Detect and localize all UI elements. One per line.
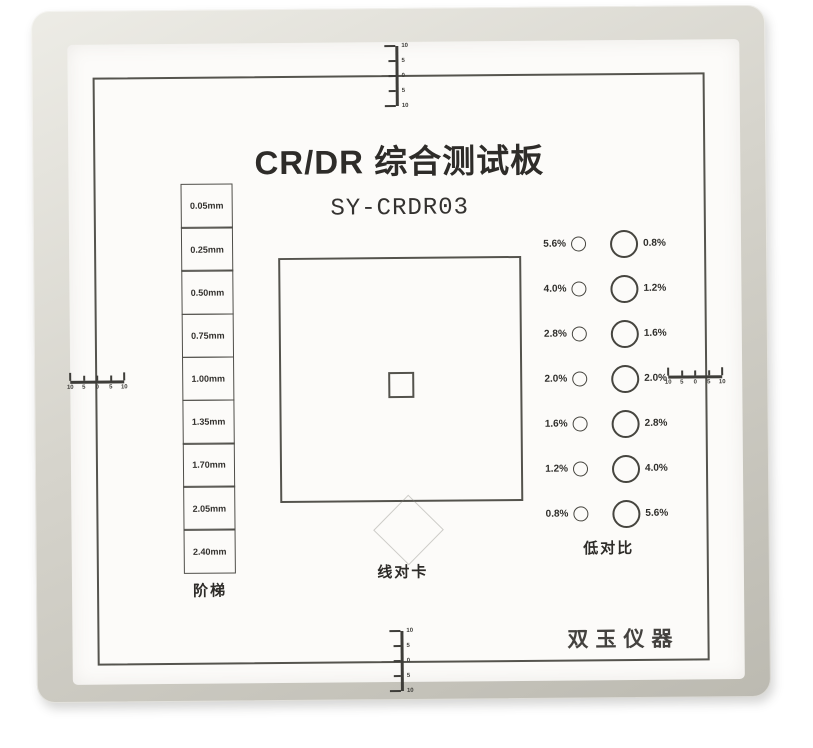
step-wedge-cell: 0.50mm (181, 270, 233, 315)
bottom-alignment-ruler: 1050510 (387, 631, 418, 691)
low-contrast-right-value: 1.6% (644, 328, 667, 339)
right-alignment-ruler: 1050510 (668, 367, 722, 385)
ruler-tick (384, 45, 395, 47)
ruler-tick-label: 10 (401, 43, 408, 49)
low-contrast-left-value: 2.0% (533, 374, 567, 385)
step-wedge-value: 2.05mm (193, 503, 227, 513)
low-contrast-row: 5.6%0.8% (532, 220, 708, 267)
ruler-tick-label: 10 (407, 688, 414, 694)
ruler-tick (69, 373, 71, 381)
board-title: CR/DR 综合测试板 (95, 132, 703, 185)
low-contrast-left-value: 0.8% (534, 509, 568, 520)
low-contrast-left-value: 4.0% (532, 284, 566, 295)
ruler-baseline (395, 46, 398, 106)
ruler-tick (721, 367, 723, 375)
ruler-tick-label: 10 (121, 384, 128, 390)
brand-watermark: 双玉仪器 (567, 623, 679, 654)
photo-canvas: CR/DR 综合测试板 SY-CRDR03 0.05mm0.25mm0.50mm… (0, 0, 813, 748)
ruler-tick-label: 0 (96, 385, 99, 391)
step-wedge-cell: 0.75mm (182, 313, 234, 358)
ruler-tick (394, 675, 401, 677)
ruler-tick (389, 75, 396, 77)
left-alignment-ruler: 1050510 (70, 372, 124, 390)
low-contrast-big-circle (612, 499, 640, 527)
ruler-tick (390, 690, 401, 692)
ruler-tick-label: 0 (694, 379, 697, 385)
ruler-tick-label: 5 (401, 58, 404, 64)
low-contrast-small-circle (573, 461, 588, 476)
low-contrast-row: 2.8%1.6% (533, 310, 709, 357)
ruler-tick (83, 376, 85, 381)
ruler-tick (110, 376, 112, 381)
ruler-baseline (70, 380, 124, 383)
step-wedge-value: 0.50mm (191, 287, 225, 297)
low-contrast-right-value: 2.8% (645, 418, 668, 429)
central-small-square (388, 371, 414, 397)
step-wedge-column: 0.05mm0.25mm0.50mm0.75mm1.00mm1.35mm1.70… (181, 183, 236, 573)
ruler-tick (385, 105, 396, 107)
ruler-tick (96, 376, 98, 381)
low-contrast-right-value: 5.6% (645, 508, 668, 519)
low-contrast-row: 0.8%5.6% (534, 490, 710, 537)
line-pair-label: 线对卡 (99, 558, 707, 584)
ruler-tick (394, 660, 401, 662)
ruler-tick (694, 370, 696, 375)
ruler-tick-label: 10 (719, 379, 726, 385)
ruler-tick (123, 372, 125, 380)
ruler-tick-label: 5 (680, 380, 683, 386)
printed-border-rect: CR/DR 综合测试板 SY-CRDR03 0.05mm0.25mm0.50mm… (93, 72, 710, 665)
ruler-tick-label: 10 (665, 380, 672, 386)
ruler-tick-label: 10 (67, 385, 74, 391)
low-contrast-left-value: 2.8% (533, 329, 567, 340)
low-contrast-big-circle (611, 409, 639, 437)
ruler-tick (681, 371, 683, 376)
test-board: CR/DR 综合测试板 SY-CRDR03 0.05mm0.25mm0.50mm… (31, 5, 771, 703)
low-contrast-big-circle (610, 229, 638, 257)
ruler-tick (708, 370, 710, 375)
low-contrast-left-value: 1.2% (534, 464, 568, 475)
board-panel: CR/DR 综合测试板 SY-CRDR03 0.05mm0.25mm0.50mm… (67, 39, 745, 685)
low-contrast-label: 低对比 (569, 537, 649, 559)
low-contrast-left-value: 1.6% (534, 419, 568, 430)
line-pair-diamond-outline (373, 495, 444, 566)
low-contrast-right-value: 1.2% (643, 283, 666, 294)
ruler-tick-label: 0 (407, 658, 410, 664)
step-wedge-value: 0.75mm (191, 330, 225, 340)
ruler-tick (394, 645, 401, 647)
low-contrast-left-value: 5.6% (532, 239, 566, 250)
step-wedge-cell: 1.35mm (182, 399, 234, 444)
step-wedge-value: 1.35mm (192, 417, 226, 427)
central-test-square (278, 256, 523, 503)
ruler-tick-label: 0 (402, 73, 405, 79)
low-contrast-right-value: 4.0% (645, 463, 668, 474)
step-wedge-cell: 0.05mm (181, 183, 233, 228)
ruler-baseline (400, 631, 403, 691)
low-contrast-big-circle (610, 274, 638, 302)
ruler-tick (389, 90, 396, 92)
ruler-tick-label: 5 (402, 88, 405, 94)
ruler-tick-label: 10 (402, 103, 409, 109)
low-contrast-big-circle (611, 319, 639, 347)
ruler-tick-label: 5 (82, 385, 85, 391)
low-contrast-small-circle (571, 281, 586, 296)
ruler-tick-label: 5 (109, 385, 112, 391)
low-contrast-right-value: 0.8% (643, 238, 666, 249)
step-wedge-value: 1.70mm (192, 460, 226, 470)
low-contrast-big-circle (611, 364, 639, 392)
low-contrast-right-value: 2.0% (644, 373, 667, 384)
product-photo-page: { "board": { "title": "CR/DR 综合测试板", "mo… (0, 0, 813, 748)
ruler-tick (389, 630, 400, 632)
ruler-baseline (668, 375, 722, 378)
low-contrast-big-circle (612, 454, 640, 482)
low-contrast-row: 1.2%4.0% (534, 445, 710, 492)
ruler-tick-label: 5 (407, 673, 410, 679)
ruler-tick-label: 5 (707, 379, 710, 385)
ruler-tick (388, 60, 395, 62)
step-wedge-cell: 1.00mm (182, 356, 234, 401)
low-contrast-row: 4.0%1.2% (532, 265, 708, 312)
low-contrast-small-circle (573, 416, 588, 431)
ruler-tick (667, 368, 669, 376)
low-contrast-small-circle (572, 371, 587, 386)
top-alignment-ruler: 1050510 (382, 46, 413, 106)
ruler-tick-label: 5 (407, 643, 410, 649)
step-wedge-cell: 1.70mm (183, 442, 235, 487)
low-contrast-small-circle (572, 326, 587, 341)
step-wedge-value: 2.40mm (193, 546, 227, 556)
low-contrast-small-circle (573, 506, 588, 521)
step-wedge-cell: 0.25mm (181, 227, 233, 272)
step-wedge-value: 0.05mm (190, 201, 224, 211)
step-wedge-value: 1.00mm (191, 374, 225, 384)
step-wedge-value: 0.25mm (190, 244, 224, 254)
low-contrast-small-circle (571, 236, 586, 251)
low-contrast-row: 1.6%2.8% (533, 400, 709, 447)
ruler-tick-label: 10 (406, 628, 413, 634)
step-wedge-cell: 2.05mm (183, 486, 235, 531)
